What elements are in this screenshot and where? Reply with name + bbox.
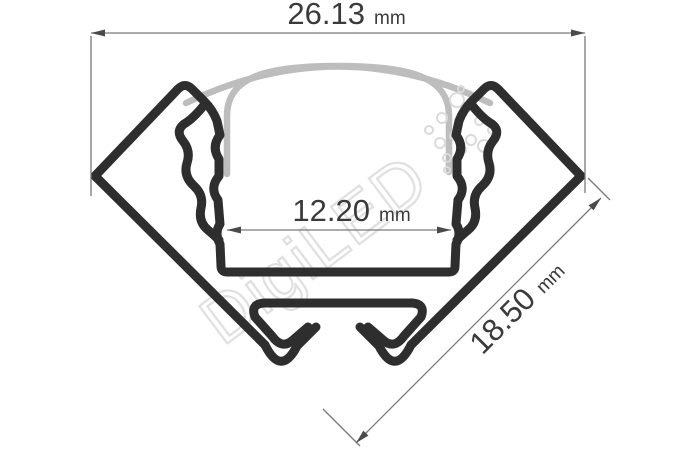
- diffuser-cover-outline: [186, 66, 490, 174]
- dimension-inner-width-value: 12.20: [292, 193, 370, 228]
- profile-cross-section-drawing: DigiLED: [0, 0, 700, 450]
- technical-drawing-canvas: DigiLED: [0, 0, 700, 450]
- dimension-side-depth-value: 18.50: [463, 281, 543, 361]
- dimension-top-width-unit: mm: [374, 8, 406, 29]
- dimension-top-width-value: 26.13: [287, 0, 365, 31]
- dimension-inner-width-unit: mm: [379, 205, 411, 226]
- dimension-side-depth-unit: mm: [532, 261, 569, 298]
